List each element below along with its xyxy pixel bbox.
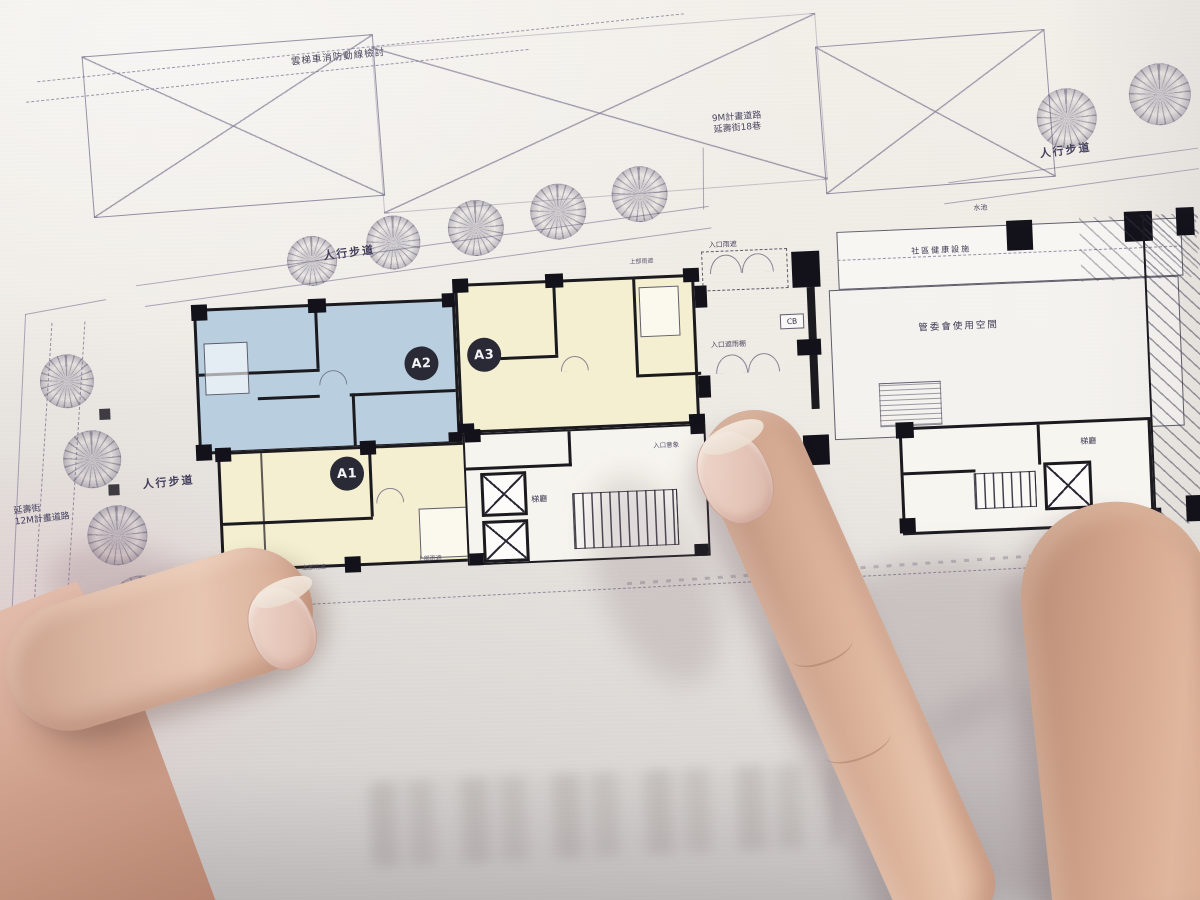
lot-boundary-x-box (82, 34, 386, 218)
walkway-edge-line (136, 206, 709, 286)
door-swing-arc (319, 370, 348, 386)
column (698, 375, 711, 397)
cb-label: CB (787, 316, 798, 326)
cb-box: CB (780, 313, 805, 329)
upper-canopy-label: 上部雨遮 (418, 555, 442, 563)
lot-boundary-line (25, 299, 106, 315)
site-planter (108, 484, 119, 495)
column (545, 273, 564, 288)
elevator-hall-label: 梯廳 (531, 494, 547, 505)
tree-icon (1128, 62, 1193, 127)
column (191, 304, 208, 321)
elevator-shaft (480, 471, 528, 517)
column (345, 556, 362, 573)
column (797, 339, 822, 356)
canopy-arch (747, 352, 780, 372)
public-block: 社區健康設施 水池 管委會使用空間 梯廳 (824, 205, 1200, 540)
bathroom (638, 286, 680, 338)
wall-segment (223, 517, 373, 526)
column (360, 440, 377, 455)
column (308, 298, 327, 313)
column (464, 429, 481, 443)
road-9m-line2: 延壽街18巷 (713, 122, 761, 136)
wall-segment (567, 431, 571, 466)
entrance-feature-label: 入口意象 (653, 441, 679, 450)
elevator-hall-label: 梯廳 (1080, 436, 1096, 447)
wall-segment (500, 355, 558, 360)
site-planter (99, 409, 110, 420)
canopy-arch (715, 354, 748, 374)
tree-icon (447, 199, 505, 257)
column (469, 553, 483, 566)
column (1006, 220, 1033, 251)
lot-boundary-line (10, 314, 26, 644)
wall-segment (350, 389, 456, 396)
column (452, 278, 469, 293)
pool-label: 水池 (973, 204, 987, 213)
column (1186, 495, 1200, 522)
column (196, 444, 213, 461)
wall-segment (368, 449, 374, 517)
door-swing-arc (560, 355, 589, 371)
wall-segment (352, 393, 357, 451)
wall-segment (258, 395, 320, 401)
wall-segment (552, 283, 558, 355)
wall-segment (1037, 425, 1042, 465)
upper-canopy-label: 上部雨遮 (629, 258, 653, 266)
bathroom (203, 342, 249, 396)
lot-boundary-x-box (815, 29, 1056, 194)
column (1176, 207, 1195, 236)
column (899, 518, 916, 534)
column (791, 251, 820, 288)
entrance-canopy2-label: 入口遮雨棚 (711, 340, 746, 350)
wall-segment (903, 469, 975, 475)
photo-floor-plan-with-hands: 雲梯車消防動線檢討 9M計畫道路 延壽街18巷 人行步道 人行步道 人行步道 人… (0, 0, 1200, 900)
tree-icon (62, 429, 122, 489)
louver-panel (879, 381, 943, 428)
wall-segment (314, 307, 320, 369)
walkway-label: 人行步道 (142, 473, 195, 492)
column (215, 447, 232, 462)
bathroom (419, 507, 469, 559)
entrance-canopy-label: 入口雨遮 (709, 240, 737, 250)
column (895, 422, 914, 439)
road-12m-label: 延壽街 12M計畫道路 (13, 500, 70, 529)
door-swing-arc (376, 487, 405, 503)
wall-segment (636, 372, 701, 378)
wall-segment (466, 463, 572, 470)
upper-canopy-label: 上部雨遮 (302, 564, 326, 572)
column (694, 285, 707, 307)
staircase (974, 471, 1037, 510)
elevator-shaft (1043, 460, 1093, 510)
elevator-shaft (482, 519, 530, 563)
